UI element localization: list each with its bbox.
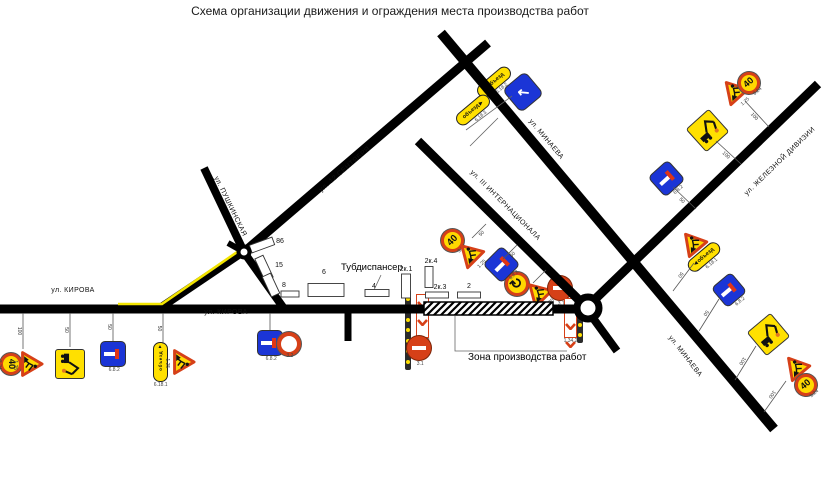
sign-post <box>673 263 694 291</box>
building <box>402 274 411 298</box>
post-distance-label: 100 <box>721 150 731 160</box>
sign-post <box>699 299 719 331</box>
post-distance-label: 50 <box>701 309 709 317</box>
building-number: 6 <box>322 269 326 276</box>
post-distance-label: 100 <box>767 389 777 399</box>
building-number: 2к.3 <box>434 284 447 291</box>
leader-line <box>455 316 567 351</box>
sign-post <box>716 141 741 164</box>
traffic-scheme-canvas: Схема организации движения и ограждения … <box>0 0 840 488</box>
street-label: ул. КИРОВА <box>156 309 296 316</box>
sign-post <box>745 101 769 127</box>
building-number: 15 <box>275 262 283 269</box>
post-distance-label: 50 <box>156 326 162 332</box>
building-number: 2к.4 <box>425 258 438 265</box>
leader-line <box>470 118 498 146</box>
building <box>281 291 299 297</box>
sign-post <box>764 381 786 412</box>
road-segment <box>441 33 774 429</box>
junction-circle <box>577 297 599 319</box>
post-distance-label: 100 <box>16 327 22 336</box>
road-segment <box>160 250 246 308</box>
road-segment <box>588 84 818 306</box>
post-distance-label: 100 <box>737 356 747 366</box>
building-number: 2к.1 <box>400 266 413 273</box>
road-network: 100505050505010010050505010010086158642к… <box>0 0 840 488</box>
building <box>458 292 481 298</box>
building-number: 86 <box>276 238 284 245</box>
building <box>365 290 389 297</box>
building-number: 4 <box>372 283 376 290</box>
building-number: 8 <box>282 282 286 289</box>
road-segment <box>204 168 244 252</box>
sign-post <box>533 270 546 283</box>
building <box>425 267 433 288</box>
building <box>426 292 449 298</box>
post-distance-label: 50 <box>63 327 69 333</box>
post-distance-label: 100 <box>749 112 759 122</box>
work-zone-hatch <box>424 302 553 315</box>
sign-post <box>673 187 696 209</box>
road-segment <box>418 141 584 305</box>
building-number: 2 <box>467 283 471 290</box>
post-distance-label: 50 <box>106 324 112 330</box>
building <box>308 284 344 297</box>
street-label: ул. КИРОВА <box>3 287 143 294</box>
